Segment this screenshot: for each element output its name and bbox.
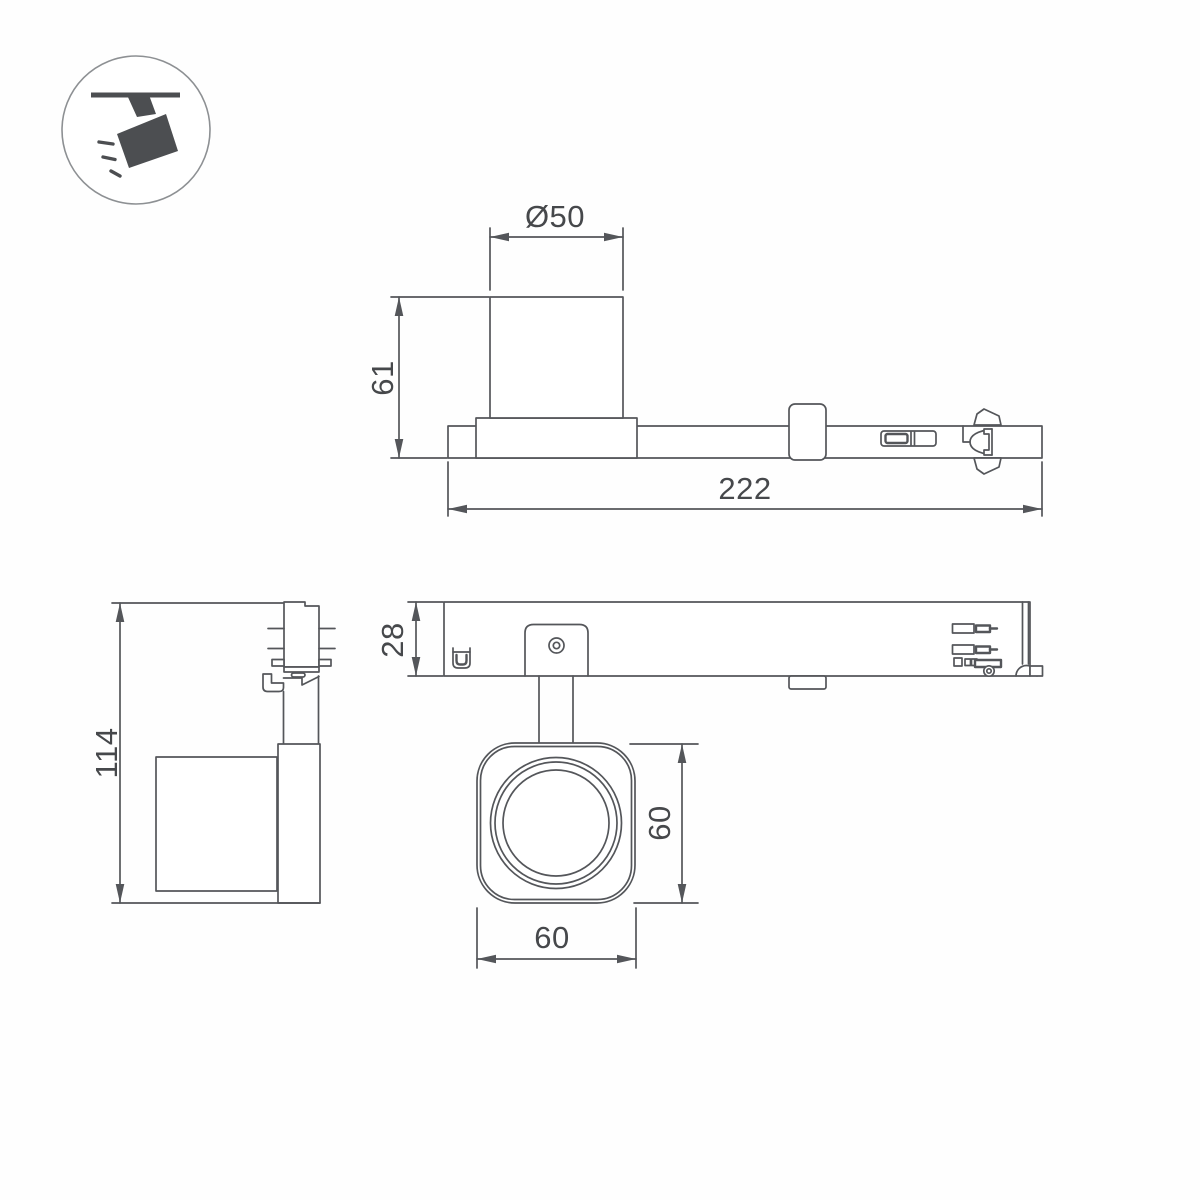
dim-label-depth: 28 xyxy=(375,622,410,657)
track-spotlight-icon xyxy=(62,56,210,204)
plan-contact-2 xyxy=(953,645,975,654)
front-lamp-head xyxy=(156,757,277,891)
front-view: 114 xyxy=(89,602,335,903)
front-lamp-body xyxy=(278,744,320,903)
plan-contact-1 xyxy=(953,624,975,633)
plan-end-lug xyxy=(1030,666,1043,676)
front-adapter-body xyxy=(284,602,319,667)
dimension-head-height-60: 60 xyxy=(630,744,698,903)
front-right-tab xyxy=(319,660,331,667)
dim-label-height: 61 xyxy=(365,360,400,395)
plan-lamp-head xyxy=(477,743,635,903)
drawing-canvas: Ø50 61 222 xyxy=(0,0,1200,1200)
front-hook xyxy=(263,674,284,692)
latch-top-wing xyxy=(974,409,1001,425)
dimension-length-222: 222 xyxy=(448,462,1042,516)
dimension-depth-28: 28 xyxy=(375,602,443,676)
dim-label-length: 222 xyxy=(718,471,771,506)
side-lamp-cylinder xyxy=(490,297,623,418)
plan-track-bar xyxy=(444,602,1030,676)
plan-rounded-block xyxy=(789,676,826,689)
front-latch-lens xyxy=(292,673,306,677)
plan-view: 28 60 60 xyxy=(375,602,1043,968)
technical-drawing-page: Ø50 61 222 xyxy=(0,0,1200,1200)
latch-bottom-wing xyxy=(974,458,1001,474)
extension-lines xyxy=(408,602,443,676)
side-slider-switch xyxy=(881,431,936,446)
dim-label-head-height: 60 xyxy=(642,805,677,840)
side-rounded-block xyxy=(789,404,826,460)
head-outer-outline xyxy=(477,743,635,903)
plan-stem xyxy=(539,676,573,743)
dim-label-diameter: Ø50 xyxy=(525,199,585,234)
dim-label-head-width: 60 xyxy=(534,920,569,955)
front-latch-slope xyxy=(284,677,320,686)
front-stem xyxy=(284,676,319,744)
dimension-head-width-60: 60 xyxy=(477,908,636,968)
front-adapter-base xyxy=(284,667,319,672)
dimension-diameter-50: Ø50 xyxy=(490,199,623,290)
side-view: Ø50 61 222 xyxy=(365,199,1042,516)
dim-label-height: 114 xyxy=(89,728,124,779)
plan-small-square xyxy=(954,658,962,666)
side-mount-plate xyxy=(476,418,637,458)
front-left-tab xyxy=(272,660,284,667)
plan-screw-2 xyxy=(984,666,994,676)
